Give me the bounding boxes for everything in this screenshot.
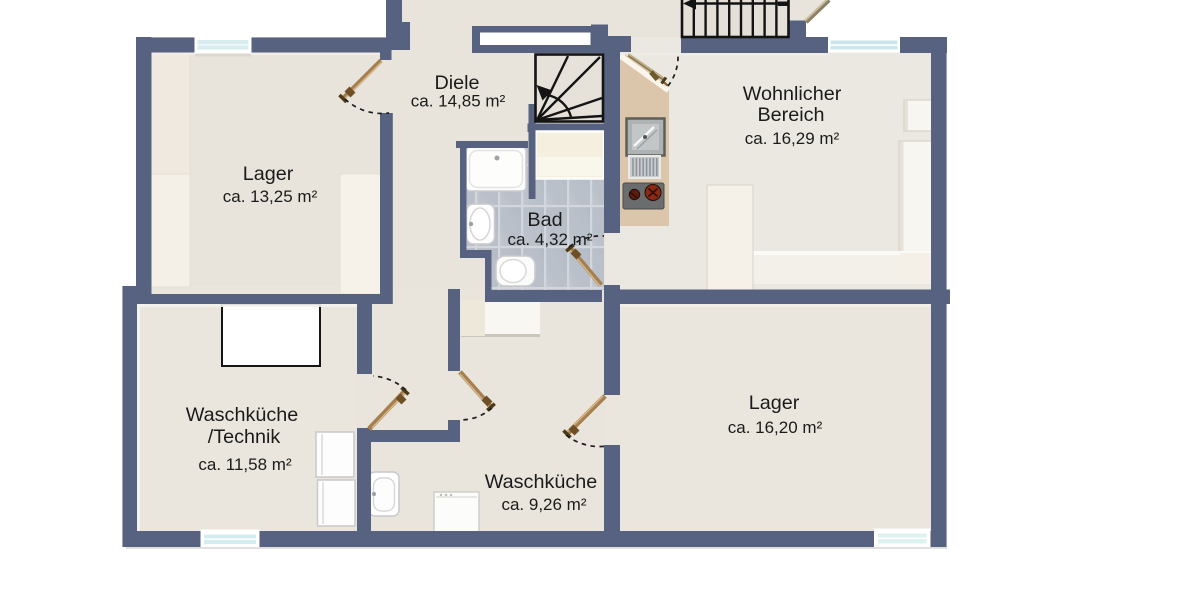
svg-text:Bereich: Bereich — [757, 104, 824, 126]
svg-text:/Technik: /Technik — [208, 426, 281, 448]
svg-text:Bad: Bad — [527, 209, 562, 231]
svg-text:ca. 11,58 m²: ca. 11,58 m² — [198, 455, 292, 474]
svg-text:ca. 4,32 m²: ca. 4,32 m² — [507, 230, 592, 249]
svg-text:Wohnlicher: Wohnlicher — [743, 83, 842, 105]
svg-text:Lager: Lager — [243, 163, 294, 185]
svg-text:Lager: Lager — [749, 392, 800, 414]
svg-text:Waschküche: Waschküche — [186, 404, 299, 426]
svg-text:Waschküche: Waschküche — [485, 471, 598, 493]
svg-text:ca. 9,26 m²: ca. 9,26 m² — [501, 495, 586, 514]
svg-text:ca. 14,85 m²: ca. 14,85 m² — [411, 92, 506, 111]
svg-text:ca. 13,25 m²: ca. 13,25 m² — [223, 187, 318, 206]
svg-text:ca. 16,20 m²: ca. 16,20 m² — [728, 418, 823, 437]
svg-text:ca. 16,29 m²: ca. 16,29 m² — [745, 129, 840, 148]
